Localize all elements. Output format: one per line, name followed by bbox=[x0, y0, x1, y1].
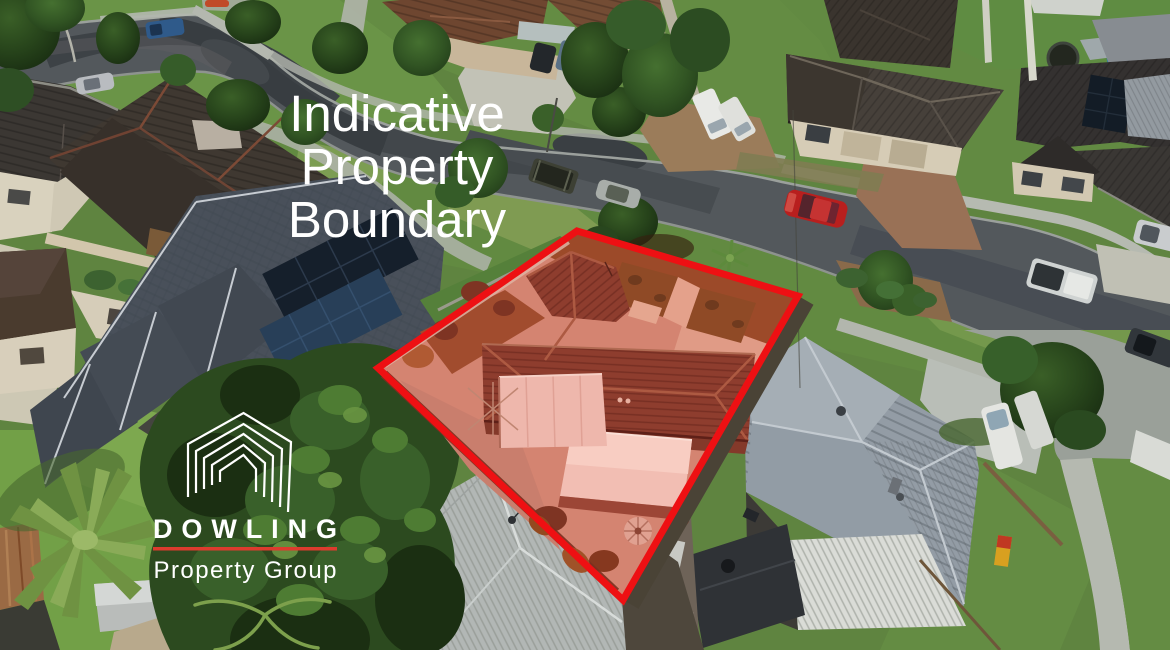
svg-text:Boundary: Boundary bbox=[288, 191, 507, 248]
svg-text:Property: Property bbox=[301, 138, 494, 195]
svg-text:Property Group: Property Group bbox=[154, 557, 337, 584]
svg-text:Indicative: Indicative bbox=[289, 85, 504, 142]
